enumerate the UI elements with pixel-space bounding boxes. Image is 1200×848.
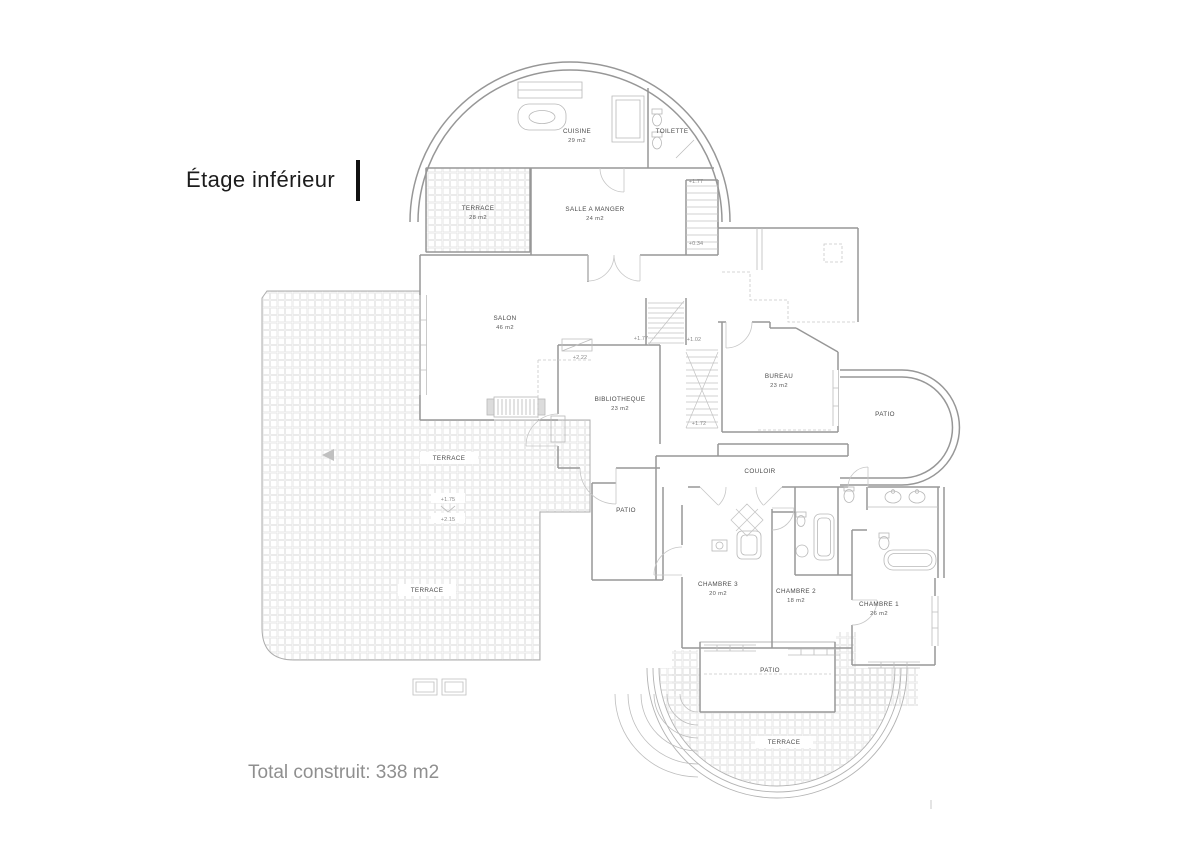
room-label-chambre-2: CHAMBRE 2	[776, 588, 816, 595]
room-label-chambre-3: CHAMBRE 3	[698, 581, 738, 588]
bidet-icon	[653, 137, 662, 149]
door-arcs	[526, 168, 877, 625]
salon-window	[421, 295, 427, 395]
kitchen-sink-icon	[529, 111, 555, 124]
corridor-door-right	[756, 487, 782, 505]
salon-dashed	[538, 360, 592, 418]
dining-double-door	[588, 255, 640, 281]
room-area-salle-a-manger: 24 m2	[586, 216, 604, 222]
kitchen-island	[612, 96, 644, 142]
floor-plan-page: Étage inférieur Total construit: 338 m2	[0, 0, 1200, 848]
room-label-couloir: COULOIR	[744, 468, 775, 475]
corridor-door-left	[700, 487, 726, 505]
room-label-chambre-1: CHAMBRE 1	[859, 601, 899, 608]
room-area-terrace-top: 28 m2	[469, 215, 487, 221]
toilet-tank-4	[879, 533, 889, 538]
elevation-entry-top: +1.77	[689, 179, 703, 185]
fireplace-block-right	[538, 399, 545, 415]
elevation-terrace-upper: +1.75	[441, 497, 455, 503]
toilet-icon-3	[844, 490, 854, 503]
bathtub-inner-2	[888, 554, 932, 567]
room-label-patio-right: PATIO	[875, 411, 895, 418]
planter-boxes	[413, 679, 466, 695]
bathtub-inner	[818, 518, 831, 556]
faucet-left	[891, 490, 895, 494]
bedroom1-window-right	[932, 596, 938, 646]
toilette-diagonal-wall	[676, 140, 694, 158]
wc-left-fixtures	[712, 531, 761, 559]
elevation-salon: +2.22	[573, 355, 587, 361]
toilet-tank-2	[796, 512, 806, 517]
bathroom-right-door	[848, 467, 868, 487]
landing-stairs	[648, 301, 684, 345]
bedroom3-terrace-door	[654, 547, 682, 575]
fireplace-body	[494, 397, 538, 417]
room-label-bibliotheque: BIBLIOTHEQUE	[595, 396, 646, 403]
upper-right-inner-wall	[757, 228, 762, 270]
bathroom-right-fixtures	[844, 487, 936, 570]
elevation-stairs-bottom: +1.72	[692, 421, 706, 427]
entry-stairs	[686, 186, 718, 249]
patio-bottom-area	[700, 642, 835, 712]
room-area-salon: 46 m2	[496, 325, 514, 331]
elevation-landing-left: +1.77	[634, 336, 648, 342]
bathtub-icon	[814, 514, 834, 560]
elevation-terrace-lower: +2.15	[441, 517, 455, 523]
bathroom-middle-fixtures	[796, 512, 834, 560]
elevation-entry-bottom: +0.34	[689, 241, 703, 247]
room-label-patio-middle: PATIO	[616, 507, 636, 514]
office-door	[726, 322, 752, 348]
fireplace	[487, 397, 545, 417]
room-area-cuisine: 29 m2	[568, 138, 586, 144]
room-area-chambre-3: 20 m2	[709, 591, 727, 597]
toilet-tank	[652, 109, 662, 114]
room-label-salon: SALON	[493, 315, 516, 322]
shower-tray-inner	[741, 535, 757, 555]
overhang-dashed	[722, 272, 856, 322]
fireplace-hatch	[498, 399, 534, 415]
room-label-bureau: BUREAU	[765, 373, 793, 380]
faucet-right	[915, 490, 919, 494]
room-label-terrace-bottom: TERRACE	[768, 739, 801, 746]
tile-strip-1	[672, 650, 698, 694]
sink-icon	[796, 545, 808, 557]
room-label-patio-bottom: PATIO	[760, 667, 780, 674]
room-label-toilette: TOILETTE	[656, 128, 689, 135]
office-window	[833, 370, 839, 426]
kitchen-door	[600, 168, 624, 192]
room-label-terrace-left-upper: TERRACE	[433, 455, 466, 462]
room-label-terrace-left-lower: TERRACE	[411, 587, 444, 594]
stairs	[648, 186, 718, 428]
kitchen-worktop	[518, 104, 566, 130]
room-area-chambre-1: 26 m2	[870, 611, 888, 617]
room-label-salle-a-manger: SALLE A MANGER	[565, 206, 624, 213]
room-label-terrace-top: TERRACE	[462, 205, 495, 212]
corridor-walls	[656, 444, 940, 487]
terrace-left-area	[262, 291, 590, 660]
tile-strip-3	[852, 668, 918, 706]
fireplace-block-left	[487, 399, 494, 415]
floor-plan-drawing: CUISINE 29 m2 TOILETTE TERRACE 28 m2 SAL…	[0, 0, 1200, 848]
dashed-square	[824, 244, 842, 262]
patio-right-walls	[840, 370, 959, 485]
toilet-icon-4	[879, 537, 889, 550]
room-area-bibliotheque: 23 m2	[611, 406, 629, 412]
toilet-icon	[653, 114, 662, 126]
double-sink-right	[909, 491, 925, 503]
bathtub-icon-2	[884, 550, 936, 570]
main-stairs	[686, 350, 718, 428]
salon-walls	[420, 255, 588, 420]
elevation-landing-right: +1.02	[687, 337, 701, 343]
kitchen-counter	[518, 82, 582, 98]
washbasin-bowl	[716, 542, 723, 549]
room-label-cuisine: CUISINE	[563, 128, 591, 135]
double-sink-left	[885, 491, 901, 503]
room-area-bureau: 23 m2	[770, 383, 788, 389]
room-area-chambre-2: 18 m2	[787, 598, 805, 604]
